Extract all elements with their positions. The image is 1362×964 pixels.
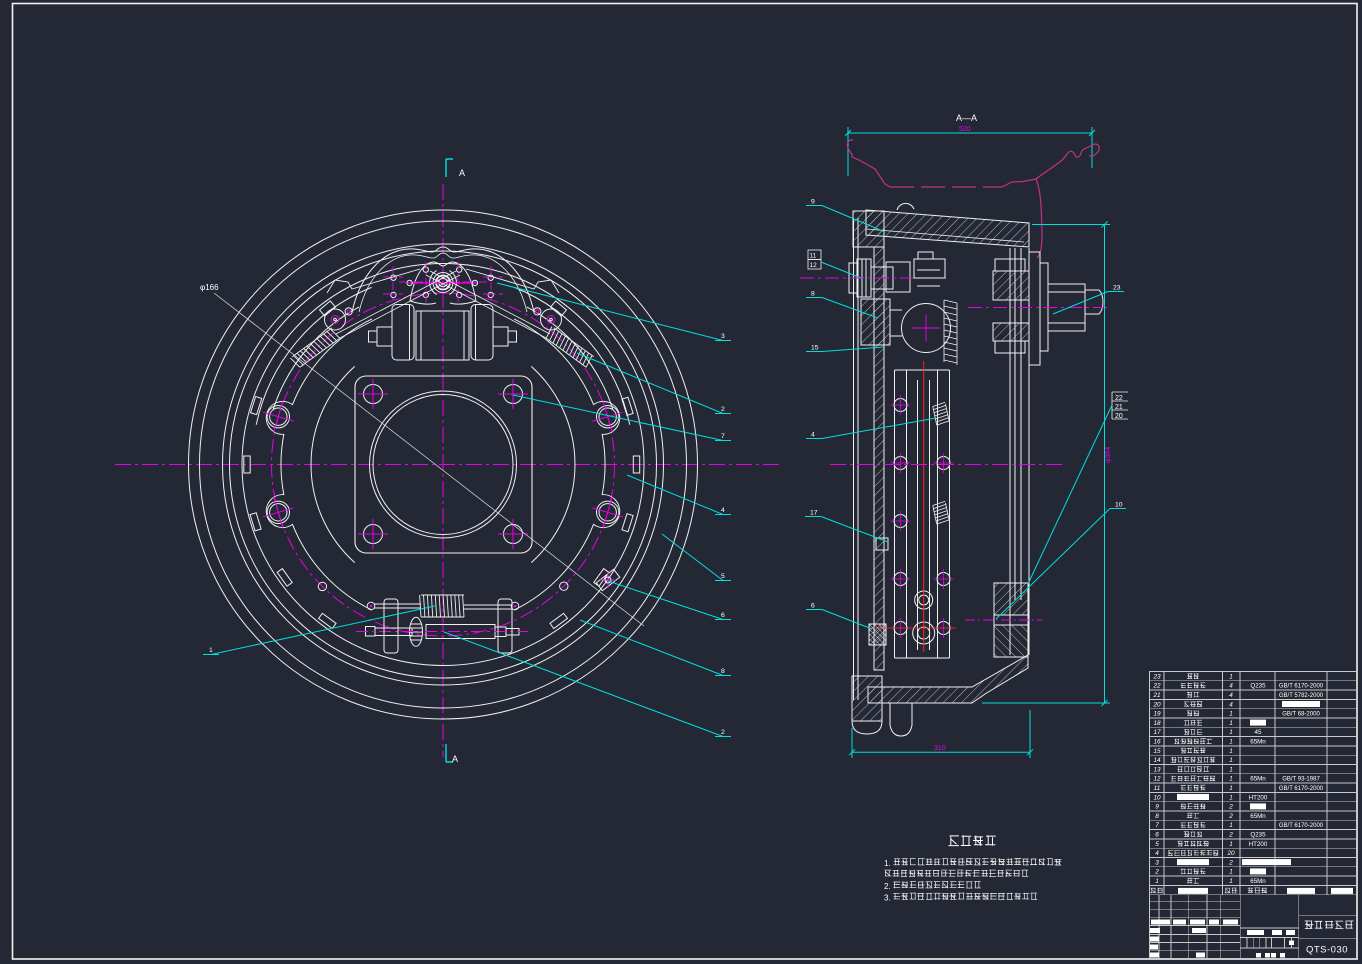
svg-text:1: 1: [1229, 794, 1233, 801]
svg-text:8: 8: [1155, 813, 1159, 820]
svg-text:520: 520: [959, 126, 971, 133]
svg-text:3.: 3.: [884, 894, 891, 903]
svg-text:23: 23: [1152, 673, 1161, 680]
svg-text:15: 15: [811, 345, 819, 352]
svg-text:1: 1: [1229, 822, 1233, 829]
svg-text:φ166: φ166: [200, 283, 219, 292]
svg-text:HT200: HT200: [1249, 794, 1268, 801]
svg-text:21: 21: [1115, 404, 1123, 411]
svg-text:12: 12: [1153, 776, 1161, 783]
svg-text:GB/T 6170-2000: GB/T 6170-2000: [1279, 684, 1324, 690]
svg-text:5: 5: [1155, 841, 1159, 848]
svg-text:1: 1: [209, 647, 213, 654]
svg-text:65Mn: 65Mn: [1250, 878, 1266, 885]
svg-text:1.: 1.: [884, 859, 891, 868]
svg-text:1: 1: [1229, 785, 1233, 792]
svg-text:11: 11: [1154, 785, 1161, 792]
svg-text:A: A: [459, 168, 465, 178]
svg-text:18: 18: [1153, 720, 1161, 727]
svg-text:A: A: [452, 754, 458, 764]
svg-text:17: 17: [810, 510, 818, 517]
svg-text:1: 1: [1229, 711, 1233, 718]
svg-text:16: 16: [1153, 739, 1161, 746]
svg-text:22: 22: [1152, 683, 1161, 690]
svg-text:7: 7: [721, 433, 725, 440]
svg-text:21: 21: [1152, 692, 1161, 699]
svg-text:1: 1: [1155, 878, 1159, 885]
svg-text:8: 8: [721, 668, 725, 675]
svg-text:GB/T 68-2000: GB/T 68-2000: [1282, 712, 1320, 718]
svg-text:4: 4: [1229, 701, 1233, 708]
svg-text:65Mn: 65Mn: [1250, 739, 1266, 746]
svg-text:9: 9: [1155, 804, 1159, 811]
svg-text:Q235: Q235: [1250, 832, 1266, 839]
svg-text:310: 310: [934, 745, 946, 752]
svg-text:4: 4: [721, 507, 725, 514]
svg-text:17: 17: [1153, 729, 1161, 736]
svg-text:19: 19: [1153, 711, 1161, 718]
svg-text:2: 2: [1228, 832, 1233, 839]
svg-text:2.: 2.: [884, 882, 891, 891]
svg-text:1: 1: [1229, 720, 1233, 727]
svg-text:Q235: Q235: [1250, 683, 1266, 690]
svg-text:20: 20: [1152, 701, 1161, 708]
svg-text:φ364: φ364: [1105, 447, 1112, 463]
svg-text:23: 23: [1113, 285, 1121, 292]
svg-text:10: 10: [1153, 794, 1161, 801]
svg-text:4: 4: [1229, 683, 1233, 690]
svg-text:1: 1: [1229, 776, 1233, 783]
svg-text:9: 9: [811, 199, 815, 206]
svg-text:20: 20: [1226, 850, 1235, 857]
svg-text:5: 5: [721, 573, 725, 580]
svg-text:1: 1: [1229, 673, 1233, 680]
svg-text:1: 1: [1229, 748, 1233, 755]
svg-text:6: 6: [811, 603, 815, 610]
svg-text:6: 6: [1155, 832, 1159, 839]
svg-text:1: 1: [1229, 729, 1233, 736]
svg-text:QTS-030: QTS-030: [1306, 945, 1348, 956]
svg-text:45: 45: [1255, 729, 1262, 736]
svg-text:20: 20: [1115, 413, 1123, 420]
svg-text:1: 1: [1229, 757, 1233, 764]
svg-text:2: 2: [721, 729, 725, 736]
svg-text:8: 8: [811, 291, 815, 298]
svg-text:65Mn: 65Mn: [1250, 813, 1266, 820]
svg-text:2: 2: [1228, 813, 1233, 820]
svg-text:1: 1: [1229, 739, 1233, 746]
svg-text:GB/T 6170-2000: GB/T 6170-2000: [1279, 823, 1324, 829]
svg-text:13: 13: [1153, 766, 1161, 773]
svg-text:GB/T 6170-2000: GB/T 6170-2000: [1279, 786, 1324, 792]
svg-text:1: 1: [1229, 878, 1233, 885]
svg-text:1: 1: [1229, 766, 1233, 773]
svg-text:7: 7: [1155, 822, 1159, 829]
svg-text:GB/T 5782-2000: GB/T 5782-2000: [1279, 693, 1324, 699]
svg-text:3: 3: [721, 333, 725, 340]
svg-text:12: 12: [810, 262, 818, 269]
svg-text:65Mn: 65Mn: [1250, 776, 1266, 783]
svg-text:2: 2: [721, 406, 725, 413]
svg-text:15: 15: [1153, 748, 1161, 755]
svg-text:A—A: A—A: [956, 113, 977, 123]
svg-text:GB/T 93-1987: GB/T 93-1987: [1282, 777, 1320, 783]
svg-text:2: 2: [1228, 804, 1233, 811]
svg-text:14: 14: [1153, 757, 1161, 764]
svg-text:HT200: HT200: [1249, 841, 1268, 848]
svg-text:3: 3: [1155, 859, 1159, 866]
svg-text:1: 1: [1229, 841, 1233, 848]
svg-text:4: 4: [1155, 850, 1159, 857]
svg-text:2: 2: [1154, 869, 1159, 876]
svg-text:2: 2: [1228, 859, 1233, 866]
svg-text:10: 10: [1115, 502, 1123, 509]
svg-text:6: 6: [721, 612, 725, 619]
svg-text:4: 4: [1229, 692, 1233, 699]
svg-text:1: 1: [1229, 869, 1233, 876]
svg-text:4: 4: [811, 432, 815, 439]
svg-text:22: 22: [1115, 395, 1123, 402]
svg-text:11: 11: [810, 253, 817, 260]
